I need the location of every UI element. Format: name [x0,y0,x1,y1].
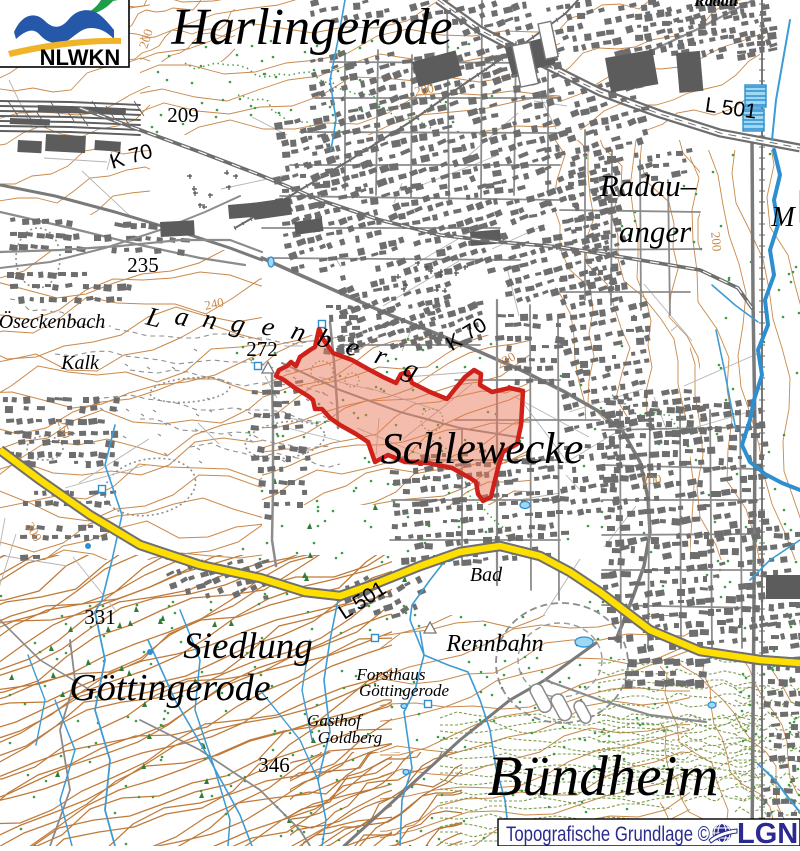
svg-text:Topografische Grundlage ©: Topografische Grundlage © [506,823,710,846]
svg-text:M: M [770,202,796,233]
svg-text:Siedlung: Siedlung [183,626,312,667]
svg-text:Radau: Radau [693,0,738,10]
svg-text:346: 346 [258,753,290,777]
svg-text:272: 272 [246,337,278,361]
svg-text:Schlewecke: Schlewecke [381,424,584,473]
svg-text:Radau–: Radau– [599,168,697,203]
svg-text:209: 209 [167,103,199,127]
svg-text:Harlingerode: Harlingerode [170,0,452,56]
svg-text:NLWKN: NLWKN [40,45,121,70]
svg-text:Göttingerode: Göttingerode [359,681,449,700]
svg-text:Öseckenbach: Öseckenbach [0,310,105,333]
svg-text:anger: anger [619,214,692,249]
svg-text:Bad: Bad [470,564,503,586]
svg-text:Göttingerode: Göttingerode [69,667,270,709]
svg-text:331: 331 [84,605,116,629]
svg-text:Kalk: Kalk [60,352,100,374]
svg-text:200: 200 [641,471,662,488]
svg-text:Bündheim: Bündheim [487,745,718,808]
svg-text:200: 200 [708,231,725,252]
svg-text:Rennbahn: Rennbahn [445,631,543,657]
svg-text:235: 235 [127,253,159,277]
svg-text:LGN: LGN [737,818,798,846]
svg-text:Goldberg: Goldberg [318,728,383,747]
